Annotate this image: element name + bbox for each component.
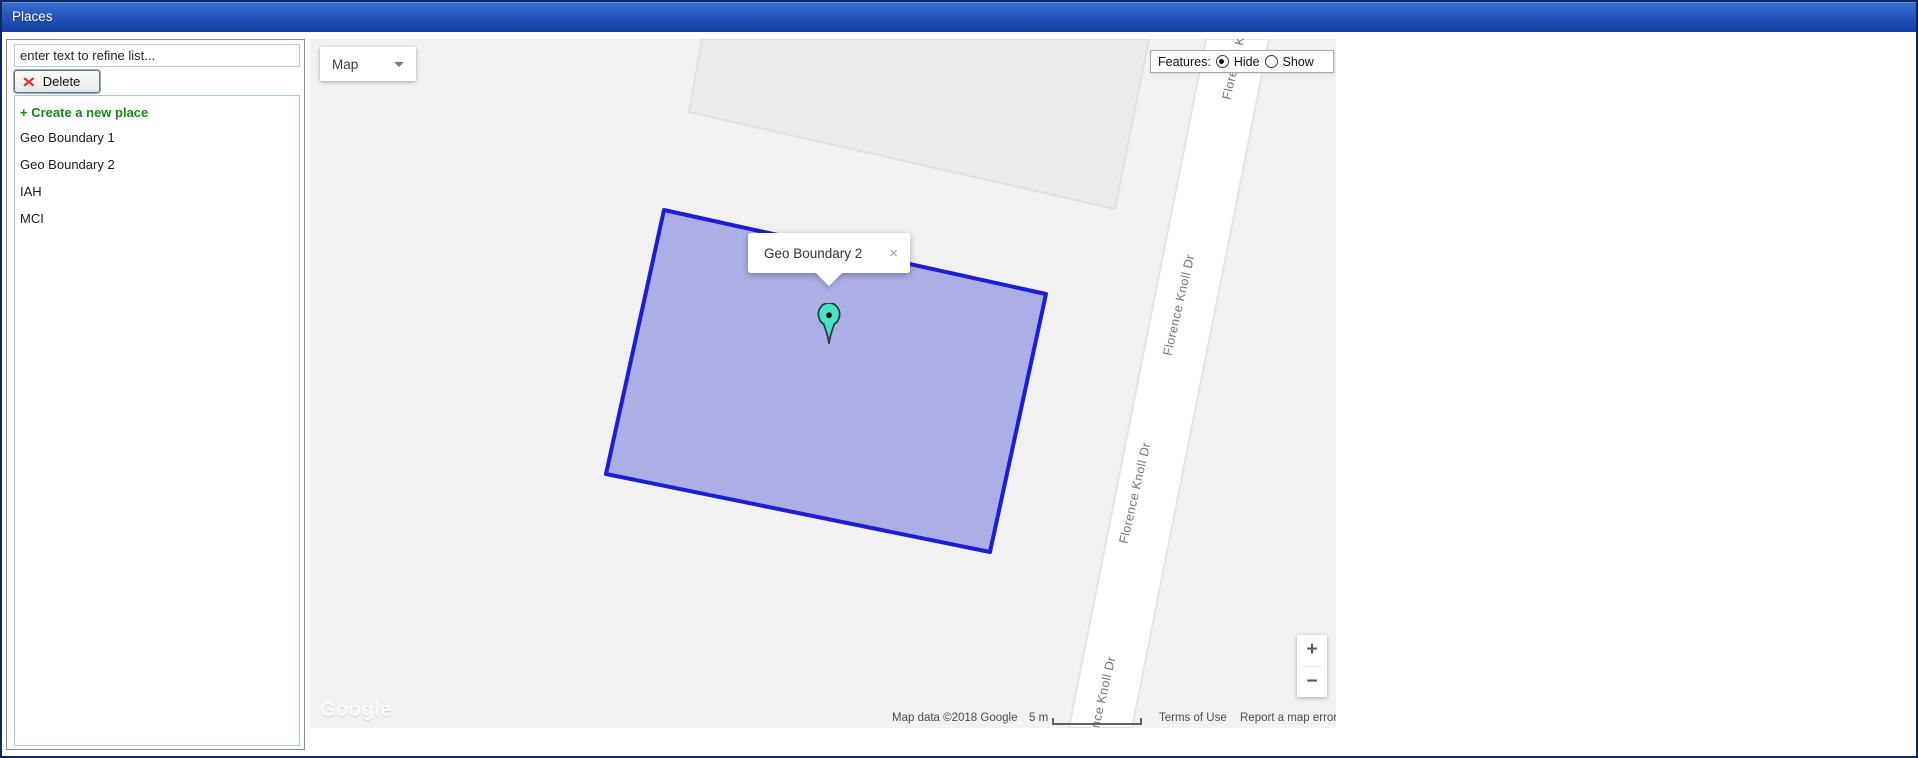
place-item-mci[interactable]: MCI (15, 205, 299, 232)
zoom-control: + − (1297, 635, 1327, 697)
map-canvas[interactable]: Florence Knoll Dr Florence Knoll Dr Flor… (310, 39, 1336, 728)
filter-input[interactable] (14, 44, 300, 67)
places-window: Places ✕ Delete + Create a new place Geo… (0, 0, 1918, 758)
map-marker[interactable] (816, 303, 842, 345)
title-bar[interactable]: Places (2, 2, 1916, 32)
close-icon[interactable]: × (889, 246, 898, 261)
building-footprint (689, 39, 1149, 209)
info-window: Geo Boundary 2 × (748, 233, 910, 273)
features-control: Features: Hide Show (1150, 50, 1334, 73)
terms-of-use-link[interactable]: Terms of Use (1159, 712, 1227, 724)
place-item-geo-boundary-2[interactable]: Geo Boundary 2 (15, 151, 299, 178)
create-new-place-link[interactable]: + Create a new place (15, 96, 299, 124)
delete-x-icon: ✕ (22, 75, 37, 89)
map-type-value: Map (332, 57, 358, 72)
zoom-in-button[interactable]: + (1297, 635, 1327, 666)
features-hide-radio[interactable] (1216, 55, 1229, 68)
scale-text: 5 m (1029, 712, 1048, 724)
place-item-geo-boundary-1[interactable]: Geo Boundary 1 (15, 124, 299, 151)
map-type-dropdown[interactable]: Map (320, 47, 416, 81)
features-show-label[interactable]: Show (1283, 55, 1314, 69)
scale-bar (1052, 718, 1142, 725)
features-label: Features: (1158, 55, 1211, 69)
places-list: + Create a new place Geo Boundary 1 Geo … (14, 95, 300, 746)
places-sidebar: ✕ Delete + Create a new place Geo Bounda… (6, 39, 305, 750)
features-show-radio[interactable] (1265, 55, 1278, 68)
place-item-iah[interactable]: IAH (15, 178, 299, 205)
window-title: Places (2, 2, 1916, 32)
info-window-title: Geo Boundary 2 (764, 246, 862, 261)
zoom-out-button[interactable]: − (1297, 667, 1327, 698)
delete-button[interactable]: ✕ Delete (14, 70, 100, 93)
chevron-down-icon (394, 62, 404, 67)
report-map-error-link[interactable]: Report a map error (1240, 712, 1336, 724)
google-logo[interactable]: Google (320, 699, 392, 722)
delete-button-label: Delete (43, 74, 81, 89)
features-hide-label[interactable]: Hide (1234, 55, 1260, 69)
map-data-attribution: Map data ©2018 Google (892, 712, 1017, 724)
map-base-layer (310, 39, 1336, 728)
